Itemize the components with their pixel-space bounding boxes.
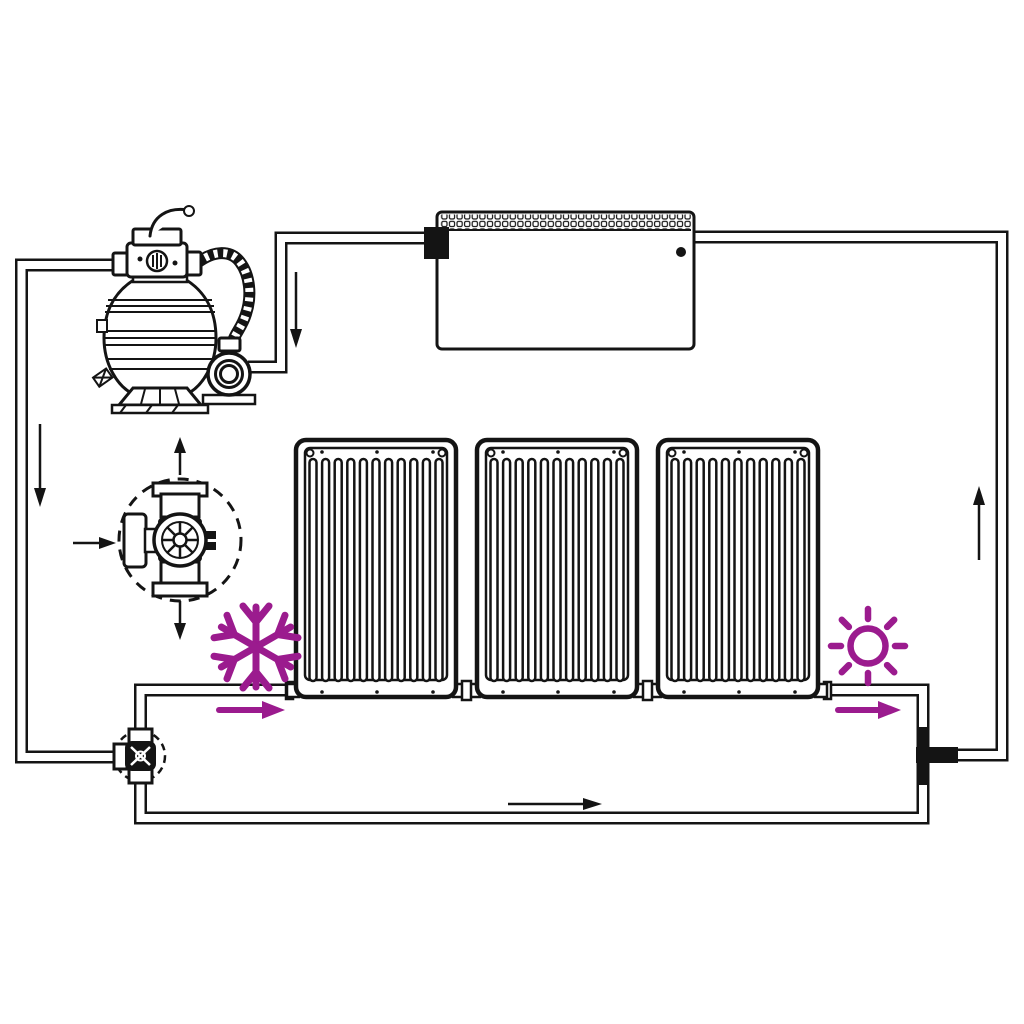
sun-icon bbox=[831, 609, 905, 683]
bypass-three-way-valve bbox=[114, 729, 165, 783]
sand-filter-pump bbox=[93, 206, 255, 413]
summer-flow-arrow bbox=[838, 701, 901, 719]
pipe-panel-inlet bbox=[141, 690, 290, 746]
snowflake-icon bbox=[214, 606, 298, 688]
flow-right-bottom-pipe bbox=[508, 798, 602, 810]
three-way-valve-detail-view bbox=[73, 437, 241, 640]
filter-tank bbox=[104, 278, 216, 394]
tee-fitting-stub bbox=[916, 747, 958, 763]
panel-coupling bbox=[462, 681, 471, 700]
multiport-valve bbox=[113, 206, 201, 282]
solar-pool-heating-diagram bbox=[0, 0, 1024, 1024]
swimming-pool bbox=[424, 212, 694, 349]
pool-body bbox=[437, 212, 694, 349]
flow-down-left-pipe bbox=[34, 424, 46, 507]
winter-flow bbox=[214, 606, 298, 719]
flow-down-pool-to-pump bbox=[290, 272, 302, 348]
pool-coping-band bbox=[440, 215, 691, 230]
pipe-pool-to-pump bbox=[248, 238, 432, 367]
pool-inlet-fitting bbox=[424, 227, 449, 259]
diagram-canvas bbox=[0, 0, 1024, 1024]
drain-plug bbox=[93, 368, 112, 386]
valve-handle bbox=[124, 514, 146, 567]
panel-coupling bbox=[643, 681, 652, 700]
summer-flow bbox=[831, 609, 905, 719]
winter-flow-arrow bbox=[219, 701, 285, 719]
flow-up-right-riser bbox=[973, 486, 985, 560]
pool-return-port bbox=[676, 247, 686, 257]
solar-panel-array bbox=[286, 440, 831, 700]
